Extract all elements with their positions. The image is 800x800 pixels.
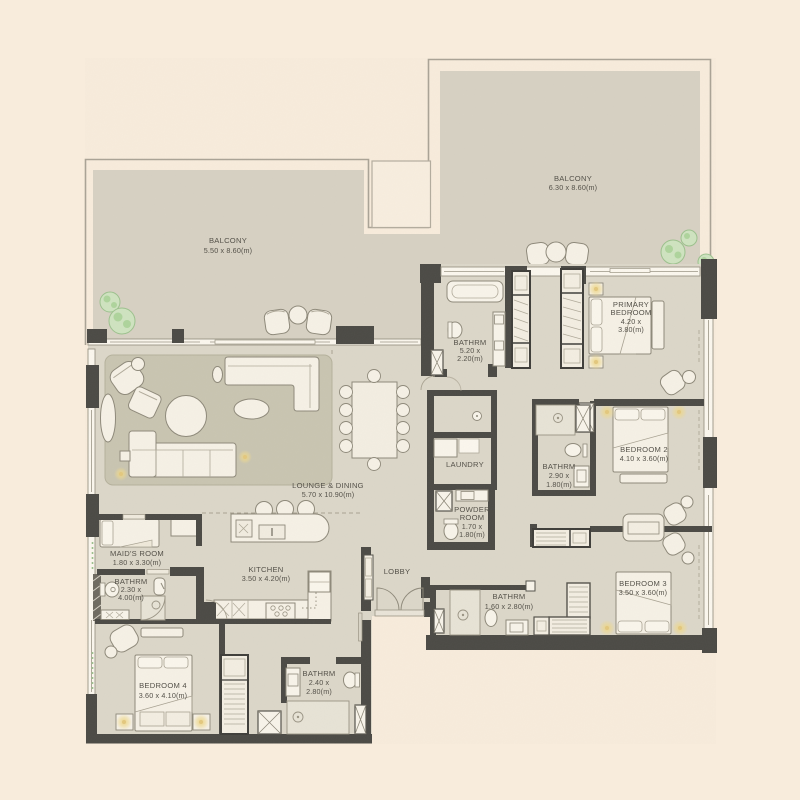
svg-text:4.00(m): 4.00(m) [118,593,144,602]
svg-text:LOBBY: LOBBY [384,567,411,576]
svg-text:1.80 x 3.30(m): 1.80 x 3.30(m) [113,558,161,567]
svg-text:MAID'S ROOM: MAID'S ROOM [110,549,164,558]
svg-text:BALCONY: BALCONY [554,174,592,183]
svg-text:2.20(m): 2.20(m) [457,354,483,363]
svg-text:BALCONY: BALCONY [209,236,247,245]
svg-text:BEDROOM 2: BEDROOM 2 [620,445,668,454]
svg-text:2.40 x: 2.40 x [309,678,330,687]
svg-text:KITCHEN: KITCHEN [248,565,283,574]
svg-text:1.60 x 2.80(m): 1.60 x 2.80(m) [485,602,533,611]
svg-text:LAUNDRY: LAUNDRY [446,460,484,469]
svg-text:6.30 x 8.60(m): 6.30 x 8.60(m) [549,183,597,192]
svg-text:2.90 x: 2.90 x [549,471,570,480]
svg-text:3.80(m): 3.80(m) [618,325,644,334]
svg-text:ROOM: ROOM [460,513,485,522]
svg-text:2.80(m): 2.80(m) [306,687,332,696]
svg-text:4.10 x 3.60(m): 4.10 x 3.60(m) [620,454,668,463]
svg-text:BEDROOM: BEDROOM [611,308,652,317]
svg-text:3.60 x 4.10(m): 3.60 x 4.10(m) [139,691,187,700]
svg-text:BATHRM: BATHRM [543,462,576,471]
svg-text:BATHRM: BATHRM [493,592,526,601]
svg-text:BEDROOM 3: BEDROOM 3 [619,579,667,588]
svg-text:3.50 x 4.20(m): 3.50 x 4.20(m) [242,574,290,583]
svg-text:5.70 x 10.90(m): 5.70 x 10.90(m) [302,490,355,499]
svg-text:5.50 x 8.60(m): 5.50 x 8.60(m) [204,246,252,255]
svg-text:1.80(m): 1.80(m) [546,480,572,489]
svg-text:BEDROOM 4: BEDROOM 4 [139,681,187,690]
svg-text:BATHRM: BATHRM [303,669,336,678]
svg-text:1.80(m): 1.80(m) [459,530,485,539]
svg-text:3.50 x 3.60(m): 3.50 x 3.60(m) [619,588,667,597]
svg-text:LOUNGE & DINING: LOUNGE & DINING [292,481,364,490]
